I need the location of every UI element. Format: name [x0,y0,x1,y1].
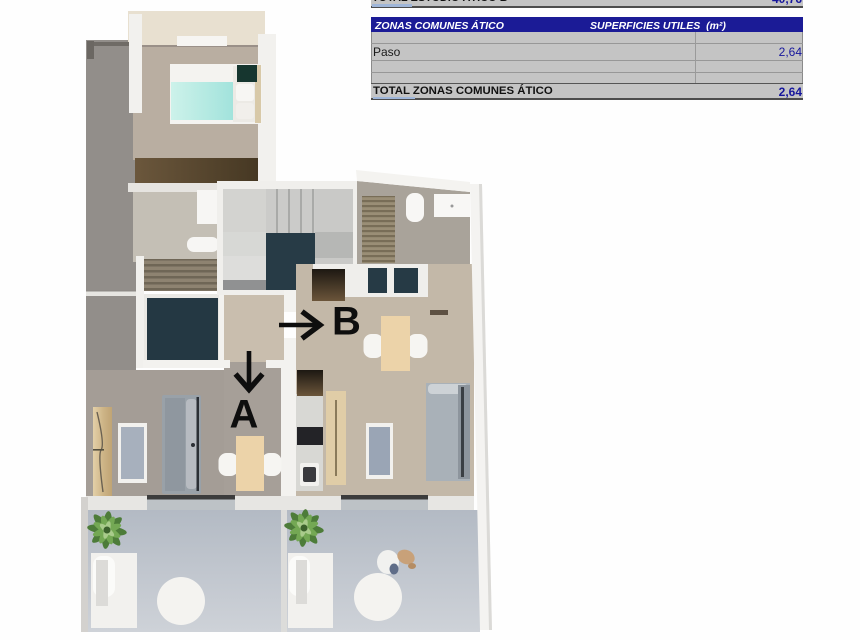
svg-text:A: A [230,393,259,437]
svg-text:B: B [332,300,361,344]
